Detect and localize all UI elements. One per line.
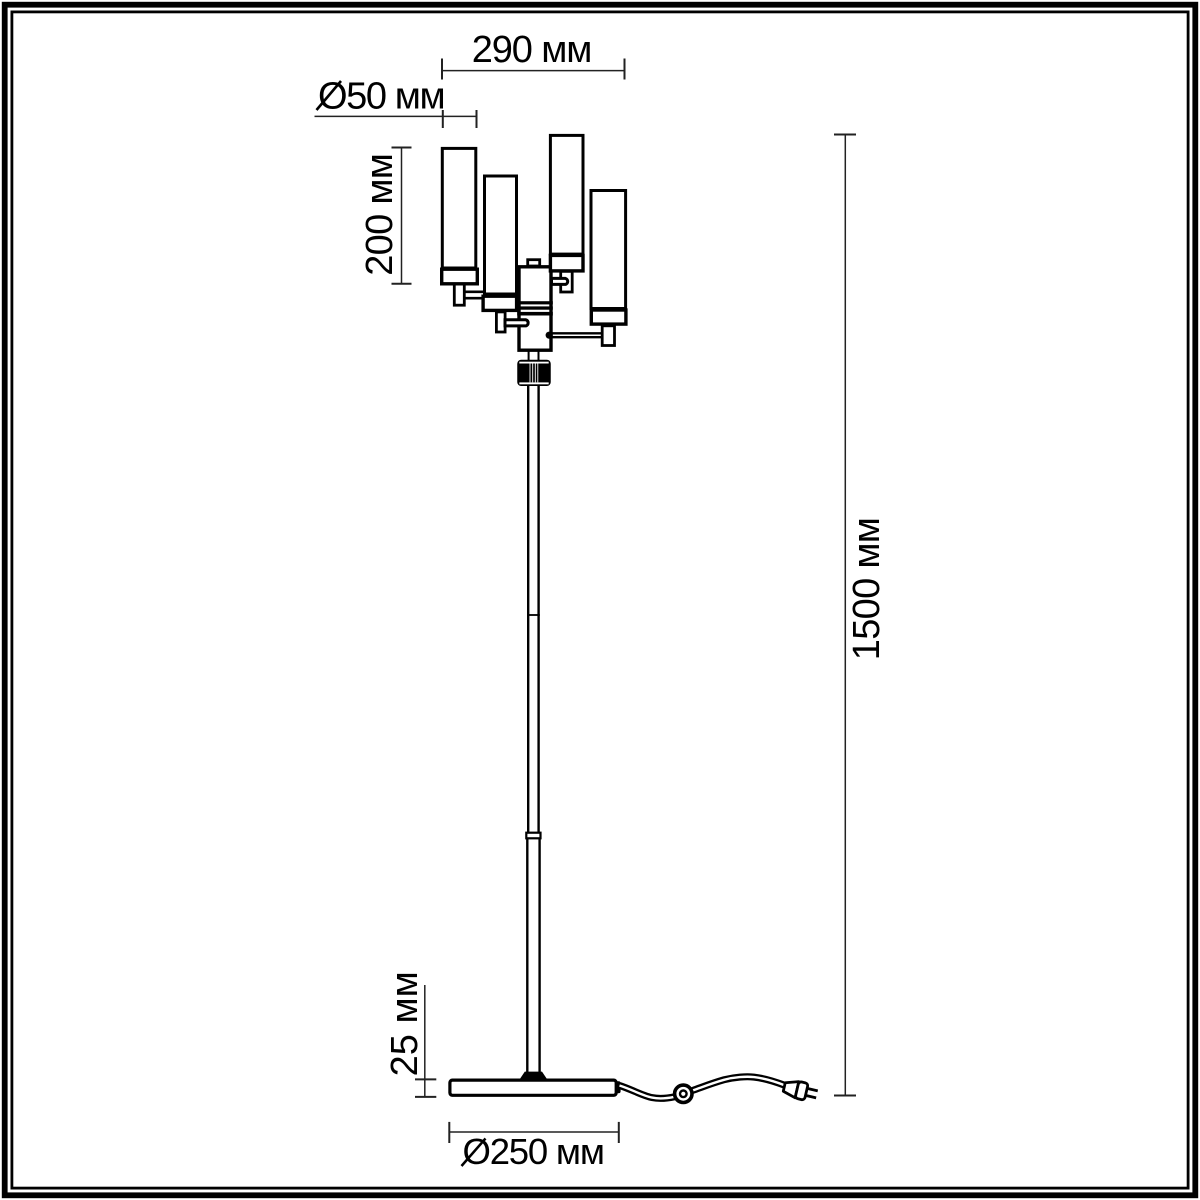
svg-text:200 мм: 200 мм <box>359 154 401 276</box>
svg-text:O50 мм: O50 мм <box>318 76 444 118</box>
svg-text:O250 мм: O250 мм <box>463 1131 604 1172</box>
svg-text:25 мм: 25 мм <box>384 971 426 1076</box>
svg-text:290 мм: 290 мм <box>472 29 592 71</box>
svg-text:1500 мм: 1500 мм <box>846 518 888 660</box>
